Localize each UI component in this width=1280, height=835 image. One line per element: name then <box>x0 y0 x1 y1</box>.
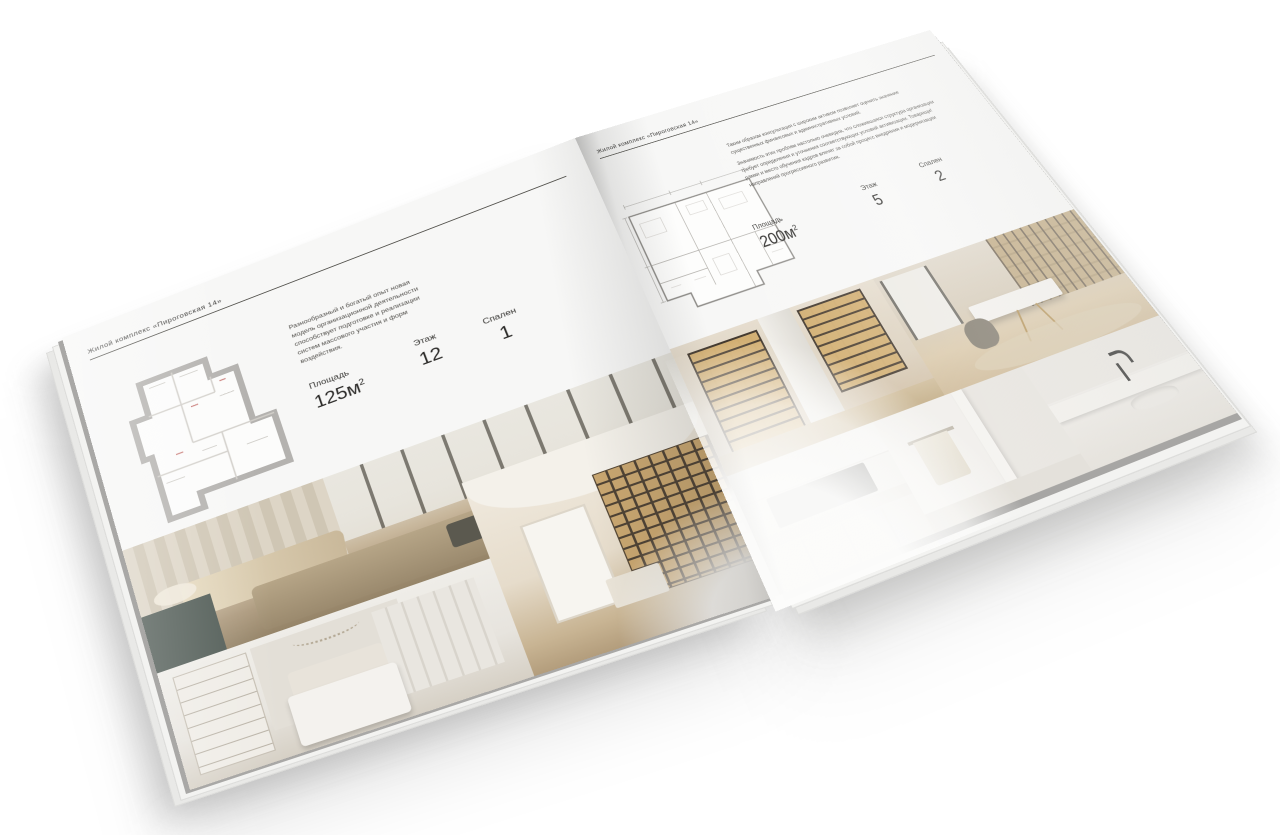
console-table <box>605 562 670 608</box>
stat-area: Площадь 125м2 <box>308 363 369 412</box>
stat-bedrooms: Спален 1 <box>472 302 535 351</box>
brochure-mockup-scene: Жилой комплекс «Пироговская 14» Разнообр… <box>0 0 1280 835</box>
right-page-header: Жилой комплекс «Пироговская 14» <box>595 118 699 155</box>
stat-floor: Этаж 12 <box>399 326 458 374</box>
stat-bedrooms: Спален 2 <box>911 153 963 189</box>
stat-floor: Этаж 5 <box>850 177 901 214</box>
doorway <box>520 504 625 624</box>
